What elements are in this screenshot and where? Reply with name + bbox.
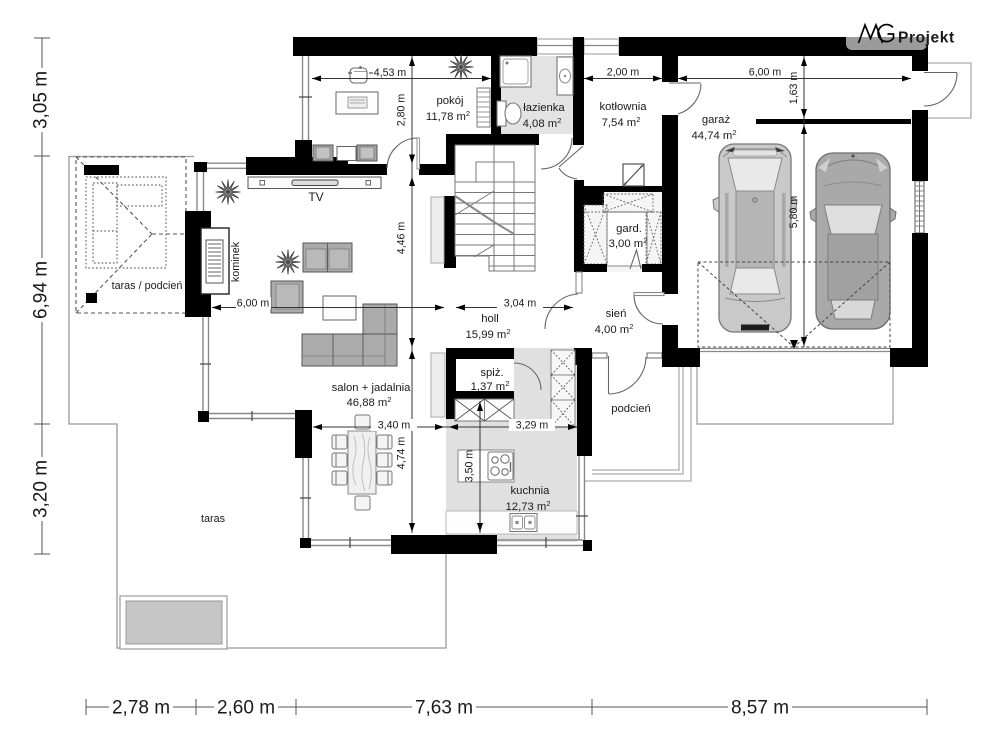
svg-text:7,63 m: 7,63 m [415, 698, 473, 719]
svg-text:7,54 m2: 7,54 m2 [602, 115, 641, 129]
svg-text:3,20 m: 3,20 m [31, 460, 52, 518]
svg-text:3,05 m: 3,05 m [31, 71, 52, 129]
svg-text:2,60 m: 2,60 m [217, 698, 275, 719]
svg-text:15,99 m2: 15,99 m2 [466, 327, 511, 341]
svg-text:holl: holl [481, 313, 499, 325]
svg-text:6,00 m: 6,00 m [749, 67, 782, 79]
svg-text:kuchnia: kuchnia [511, 485, 551, 497]
svg-text:gard.: gard. [616, 223, 642, 235]
svg-text:taras / podcień: taras / podcień [112, 280, 183, 292]
svg-text:spiż.: spiż. [480, 367, 503, 379]
svg-text:garaż: garaż [702, 114, 731, 126]
svg-text:2,78 m: 2,78 m [112, 698, 170, 719]
svg-text:sień: sień [606, 308, 627, 320]
svg-text:3,00 m2: 3,00 m2 [609, 236, 648, 250]
svg-text:pokój: pokój [436, 95, 463, 107]
svg-text:3,04 m: 3,04 m [504, 298, 537, 310]
svg-text:łazienka: łazienka [523, 102, 565, 114]
svg-text:2,00 m: 2,00 m [607, 67, 640, 79]
svg-text:4,53 m: 4,53 m [374, 67, 407, 79]
svg-text:2,80 m: 2,80 m [396, 94, 408, 127]
svg-text:5,80 m: 5,80 m [788, 196, 800, 229]
svg-text:4,08 m2: 4,08 m2 [523, 116, 562, 130]
svg-text:3,29 m: 3,29 m [516, 420, 549, 432]
svg-text:12,73 m2: 12,73 m2 [506, 499, 551, 513]
svg-text:Projekt: Projekt [898, 30, 955, 47]
svg-text:3,50 m: 3,50 m [464, 450, 476, 483]
svg-text:6,94 m: 6,94 m [31, 261, 52, 319]
svg-text:4,46 m: 4,46 m [396, 222, 408, 255]
svg-text:salon + jadalnia: salon + jadalnia [332, 382, 412, 394]
svg-text:4,74 m: 4,74 m [396, 437, 408, 470]
svg-text:11,78 m2: 11,78 m2 [426, 109, 470, 123]
svg-text:taras: taras [201, 513, 226, 525]
svg-text:46,88 m2: 46,88 m2 [347, 395, 392, 409]
svg-text:3,40 m: 3,40 m [378, 420, 411, 432]
svg-text:kotłownia: kotłownia [599, 101, 647, 113]
svg-text:44,74 m2: 44,74 m2 [692, 128, 737, 142]
svg-text:1,63 m: 1,63 m [788, 72, 800, 105]
svg-text:4,00 m2: 4,00 m2 [595, 322, 634, 336]
svg-text:8,57 m: 8,57 m [731, 698, 789, 719]
svg-text:TV: TV [308, 190, 323, 204]
svg-text:1,37 m2: 1,37 m2 [471, 379, 510, 393]
svg-text:podcień: podcień [611, 403, 651, 415]
svg-text:6,00 m: 6,00 m [237, 298, 270, 310]
svg-text:kominek: kominek [230, 241, 242, 282]
